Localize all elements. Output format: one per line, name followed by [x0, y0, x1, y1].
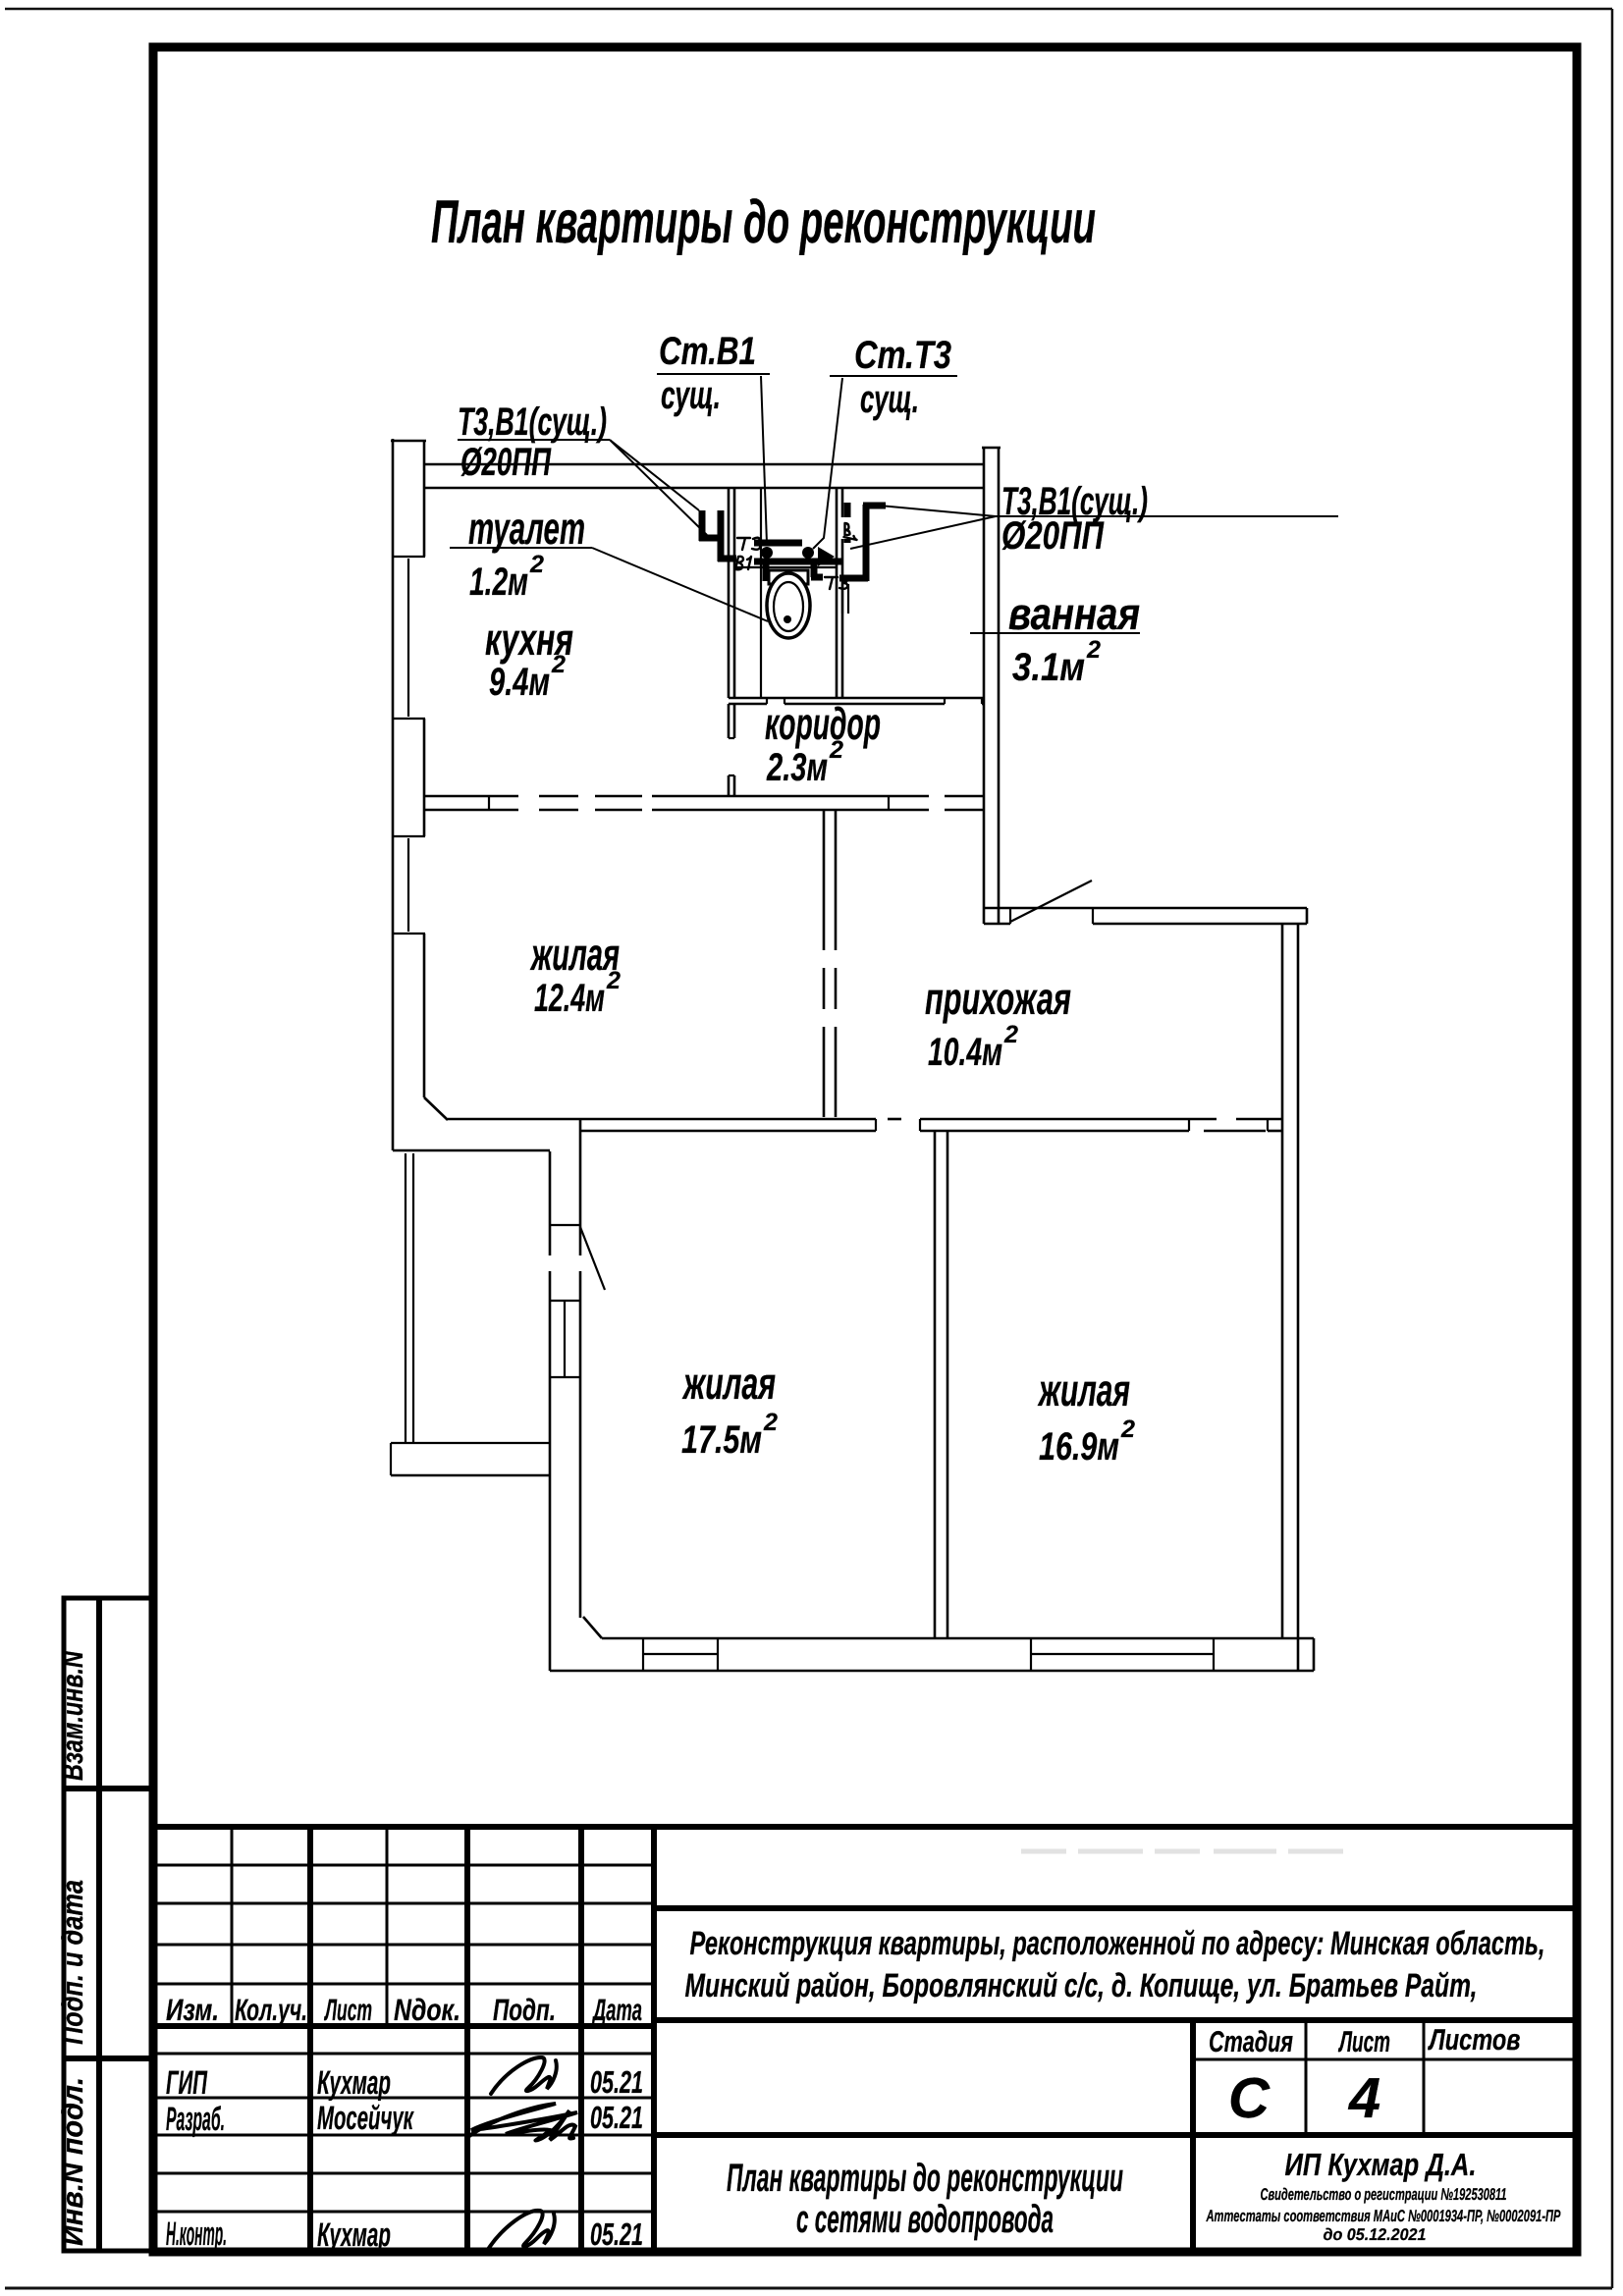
- svg-text:Реконструкция квартиры, распол: Реконструкция квартиры, расположенной по…: [690, 1925, 1545, 1962]
- svg-text:сущ.: сущ.: [661, 374, 721, 417]
- svg-text:Кухмар: Кухмар: [317, 2064, 391, 2102]
- svg-text:сущ.: сущ.: [860, 378, 919, 421]
- svg-text:4: 4: [1348, 2066, 1380, 2130]
- svg-text:Взам.инв.N: Взам.инв.N: [57, 1650, 89, 1781]
- svg-text:Лист: Лист: [1338, 2026, 1390, 2058]
- svg-text:туалет: туалет: [468, 503, 585, 554]
- svg-text:Изм.: Изм.: [166, 1993, 219, 2027]
- svg-text:ИП Кухмар Д.А.: ИП Кухмар Д.А.: [1285, 2147, 1477, 2182]
- svg-text:до 05.12.2021: до 05.12.2021: [1324, 2225, 1427, 2244]
- svg-text:Мосейчук: Мосейчук: [317, 2100, 414, 2137]
- svg-text:Н.контр.: Н.контр.: [166, 2216, 227, 2253]
- svg-text:2.3м: 2.3м: [766, 746, 828, 789]
- svg-text:12.4м: 12.4м: [534, 977, 605, 1020]
- svg-text:Инв.N подл.: Инв.N подл.: [57, 2077, 89, 2246]
- svg-text:Nдок.: Nдок.: [394, 1993, 460, 2027]
- svg-text:С: С: [1228, 2066, 1271, 2130]
- svg-text:2: 2: [1086, 636, 1101, 664]
- svg-text:Дата: Дата: [591, 1993, 642, 2027]
- svg-text:Свидетельство о регистрации №: Свидетельство о регистрации №192530811: [1261, 2185, 1507, 2204]
- svg-text:16.9м: 16.9м: [1039, 1425, 1119, 1468]
- svg-text:с сетями водопровода: с сетями водопровода: [796, 2198, 1054, 2241]
- svg-text:3.1м: 3.1м: [1012, 646, 1085, 689]
- svg-text:2: 2: [1003, 1021, 1018, 1048]
- svg-text:Подп.: Подп.: [493, 1993, 556, 2027]
- svg-text:2: 2: [529, 551, 544, 578]
- svg-text:Листов: Листов: [1428, 2024, 1521, 2056]
- svg-text:жилая: жилая: [681, 1358, 776, 1409]
- svg-text:10.4м: 10.4м: [928, 1031, 1002, 1074]
- svg-text:05.21: 05.21: [590, 2216, 643, 2252]
- svg-text:05.21: 05.21: [590, 2100, 643, 2135]
- svg-text:Ø20ПП: Ø20ПП: [460, 441, 552, 484]
- svg-text:2: 2: [763, 1409, 778, 1436]
- svg-text:17.5м: 17.5м: [681, 1418, 762, 1462]
- svg-text:коридор: коридор: [765, 698, 881, 749]
- svg-text:Ст.Т3: Ст.Т3: [854, 334, 951, 377]
- svg-text:2: 2: [1120, 1415, 1135, 1443]
- svg-text:Аттестаты соответствия МАиС №: Аттестаты соответствия МАиС №0001934-ПР,…: [1206, 2207, 1561, 2225]
- svg-text:Стадия: Стадия: [1209, 2026, 1293, 2058]
- svg-text:Ст.В1: Ст.В1: [659, 330, 756, 373]
- svg-text:2: 2: [606, 967, 621, 994]
- svg-text:жилая: жилая: [1037, 1364, 1130, 1415]
- svg-text:Т3,В1(сущ.): Т3,В1(сущ.): [458, 400, 607, 444]
- svg-text:Ø20ПП: Ø20ПП: [1001, 514, 1105, 558]
- svg-text:2: 2: [829, 736, 843, 764]
- svg-text:прихожая: прихожая: [925, 973, 1071, 1024]
- svg-text:ГИП: ГИП: [166, 2064, 208, 2102]
- svg-text:План квартиры до реконструкции: План квартиры до реконструкции: [727, 2157, 1123, 2200]
- svg-text:Разраб.: Разраб.: [166, 2101, 225, 2138]
- svg-text:Подп. и дата: Подп. и дата: [57, 1880, 89, 2045]
- svg-text:1.2м: 1.2м: [469, 561, 528, 604]
- svg-text:9.4м: 9.4м: [489, 661, 550, 704]
- svg-text:ванная: ванная: [1008, 588, 1140, 639]
- svg-text:Минский район, Боровлянский с/: Минский район, Боровлянский с/с, д. Копи…: [685, 1967, 1478, 2004]
- svg-text:Кол.уч.: Кол.уч.: [235, 1993, 307, 2027]
- svg-text:План квартиры до реконструкци: План квартиры до реконструкции: [431, 188, 1096, 256]
- svg-text:05.21: 05.21: [590, 2064, 643, 2100]
- svg-text:2: 2: [551, 651, 566, 678]
- svg-text:Кухмар: Кухмар: [317, 2216, 391, 2254]
- svg-text:Лист: Лист: [324, 1993, 372, 2027]
